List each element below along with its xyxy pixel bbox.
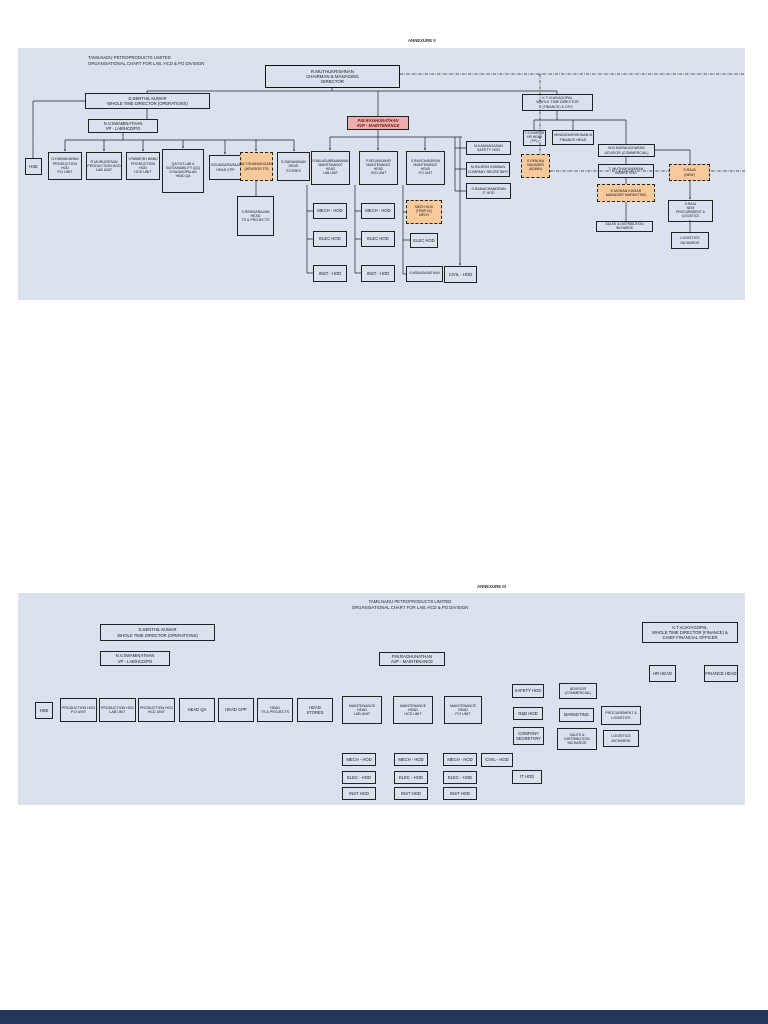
c1-hr-head-box: T.S.SURESH HR HEAD (TPL)	[523, 130, 546, 146]
chart2-annexure-label: ANNEXURE III	[477, 584, 506, 589]
c1-mech-hod-hcd-box: MECH - HOD	[361, 203, 395, 219]
c2-finance-head-box: FINANCE HEAD	[704, 665, 738, 682]
c1-elec-hod-lab-box: ELEC HOD	[313, 231, 347, 247]
c1-head-qa-box: QA/TS/T.LAB & SUSTAINABILITY (QC) S.RAJA…	[162, 149, 204, 193]
c1-production-hod-po-box: G.DHINAKARAN PRODUCTION HOD P.O UNIT	[48, 152, 82, 180]
c2-company-secretary-box: COMPANY SECRETARY	[513, 727, 544, 745]
c1-production-hod-hcd-box: V.RAMESH BABU PRODUCTION HOD HCD UNIT	[126, 152, 160, 180]
c1-raja-new-box: S.RAJA (NEW)	[669, 164, 710, 181]
c1-safety-hod-box: M.KANNADASAN SAFETY HOD	[466, 141, 511, 155]
c2-maint-head-po-box: MAINTENANCE HEAD P.O UNIT	[444, 696, 482, 724]
c2-elec-hod-hcd-box: ELEC - HOD	[394, 771, 428, 784]
c2-advisor-commercial-box: ADVISOR (COMMERCIAL)	[559, 683, 597, 699]
c1-head-ts-projects-box: S.RENGARAJAN HEAD TS & PROJECTS	[237, 196, 274, 236]
c2-maint-head-hcd-box: MAINTENANCE HEAD HCD UNIT	[393, 696, 433, 724]
c1-inst-hod-po-box: S.ARANGANATHAN	[406, 266, 443, 282]
c2-marketing-box: MARKETING	[559, 708, 594, 722]
chart1-annexure-label: ANNEXURE II	[408, 38, 436, 43]
c1-inst-hod-lab-box: INST - HOD	[313, 265, 347, 282]
c1-sales-distribution-box: SALES & DISTRIBUTION INCHARGE	[596, 221, 653, 232]
c2-mech-hod-lab-box: MECH - HOD	[342, 753, 376, 766]
c1-advisor-commercial-box: M.B.MURALIDHARAN ADVISOR (COMMERCIAL)	[598, 144, 655, 157]
c2-procurement-logistics-box: PROCUREMENT & LOGISTICS	[601, 706, 641, 725]
next-page-edge	[0, 1010, 768, 1024]
c1-maint-head-po-box: S.RAVICHANDRAN MAINTENANCE HEAD P.O UNIT	[406, 151, 445, 185]
c1-inst-hod-hcd-box: INST - HOD	[361, 265, 395, 282]
c2-production-hod-po-box: PRODUCTION HOD P.O UNIT	[60, 698, 97, 722]
c2-avp-maintenance-box: P.M.RAGHUNATHAN AVP - MAINTENANCE	[379, 652, 445, 666]
chart2-title: TAMILNADU PETROPRODUCTS LIMITED ORGANISA…	[335, 599, 485, 611]
c1-manager-admin-box: G.RENUKA MANAGER (ADMIN)	[521, 154, 550, 178]
c2-mech-hod-po-box: MECH - HOD	[443, 753, 477, 766]
c1-elec-hod-po-box: ELEC HOD	[410, 233, 438, 248]
c1-wtd-operations-box: D.SENTHIL KUMAR WHOLE TIME DIRECTOR (OPE…	[85, 93, 210, 109]
c1-advisor-ts-box: M.T.SHANMUGAM (ADVISOR TS)	[240, 152, 273, 181]
c2-head-stores-box: HEAD STORES	[297, 698, 333, 722]
c2-production-hod-lab-box: PRODUCTION HOD LAB UNIT	[99, 698, 136, 722]
c2-inst-hod-hcd-box: INST HOD	[394, 787, 428, 800]
c2-production-hod-hcd-box: PRODUCTION HOD HCD UNIT	[138, 698, 175, 722]
c2-maint-head-lab-box: MAINTENANCE HEAD LAB UNIT	[342, 696, 382, 724]
c1-mech-hod-lab-box: MECH - HOD	[313, 203, 347, 219]
c1-head-stores-box: S.SARAVANAN HEAD STORES	[277, 152, 310, 181]
c1-marketing-box: T. MUTHUKUMARAN MARKETING	[598, 164, 654, 178]
c1-elec-hod-hcd-box: ELEC HOD	[361, 231, 395, 247]
c1-production-hod-lab-box: R.MURUGESAN PRODUCTION HOD LAB UNIT	[86, 152, 122, 180]
c2-head-qa-box: HEAD QA	[179, 698, 215, 722]
c2-elec-hod-lab-box: ELEC - HOD	[342, 771, 376, 784]
c2-it-hod-box: IT HOD	[512, 770, 542, 784]
c2-wtd-finance-box: K.T.VIJAYAGOPAL WHOLE TIME DIRECTOR (FIN…	[642, 622, 738, 643]
c1-cmd-box: R.MUTHUKRISHNAN CHAIRMAN & MANAGING DIRE…	[265, 65, 400, 88]
c1-procurement-logistics-box: S.RAJA NEW PROCUREMENT & LOGISTICS	[668, 200, 713, 222]
c1-head-cpp-box: S.SOUNDARARAJAN HEAD CPP	[209, 155, 242, 180]
c1-manager-marketing-box: K.MOHAN KUMAR MANAGER MARKETING	[597, 184, 655, 202]
c1-vp-lab-box: N.V.SWAMINATHAN VP - LAB/HCD/PO	[88, 119, 158, 133]
c2-civil-hod-box: CIVIL - HOD	[481, 753, 513, 767]
chart1-title: TAMILNADU PETROPRODUCTS LIMITED ORGANISA…	[88, 55, 204, 67]
c1-logistics-incharge-box: LOGISTICS INCHARGE	[671, 232, 709, 249]
c2-hr-head-box: HR HEAD	[649, 665, 676, 682]
document-page: ANNEXURE II TAMILNADU PETROPRODUCTS LIMI…	[0, 0, 768, 1024]
c1-company-secretary-box: M.RAJESH KANNAN COMPANY SECRETARY	[466, 162, 510, 177]
c1-maint-head-lab-box: R.BALASUBRAMANIAN MAINTENANCE HEAD LAB U…	[311, 151, 350, 185]
c2-sales-distribution-box: SALES & DISTRIBUTION INCHARGE	[557, 728, 597, 750]
c1-maint-head-hcd-box: P.SELVAKUMAR MAINTENANCE HEAD HCD UNIT	[359, 151, 398, 185]
c2-elec-hod-po-box: ELEC - HOD	[443, 771, 477, 784]
c2-head-ts-projects-box: HEAD TS & PROJECTS	[257, 698, 293, 722]
c2-hse-box: HSE	[35, 702, 53, 719]
c2-rnd-hod-box: R&D HOD	[513, 707, 543, 720]
c1-hse-box: HSE	[25, 158, 42, 175]
c1-finance-head-box: VENKATAKRISHNAN M FINANCE HEAD	[552, 130, 594, 145]
c2-mech-hod-hcd-box: MECH - HOD	[394, 753, 428, 766]
c1-civil-hod-box: CIVIL - HOD	[444, 266, 477, 283]
c1-avp-maintenance-box: P.M.RAGHUNATHAN AVP - MAINTENANCE	[347, 116, 409, 130]
c1-wtd-finance-box: K.T.VIJAYAGOPAL WHOLE TIME DIRECTOR (FIN…	[522, 94, 593, 111]
c2-logistics-incharge-box: LOGISTICS INCHARGE	[603, 730, 639, 747]
c2-head-cpp-box: HEAD CPP	[218, 698, 254, 722]
c2-vp-lab-box: N.V.SWAMINATHAN VP - LAB/HCD/PO	[100, 651, 170, 666]
c1-mech-hod-po-box: MECH HOD (TEMP I/C) MECH	[406, 200, 442, 224]
c2-inst-hod-lab-box: INST HOD	[342, 787, 376, 800]
c2-wtd-operations-box: D.SENTHIL KUMAR WHOLE TIME DIRECTOR (OPE…	[100, 624, 215, 641]
c2-safety-hod-box: SAFETY HOD	[512, 684, 544, 698]
c2-inst-hod-po-box: INST HOD	[443, 787, 477, 800]
c1-it-hod-box: S.RAMACHANDRAN IT HOD	[466, 183, 511, 199]
